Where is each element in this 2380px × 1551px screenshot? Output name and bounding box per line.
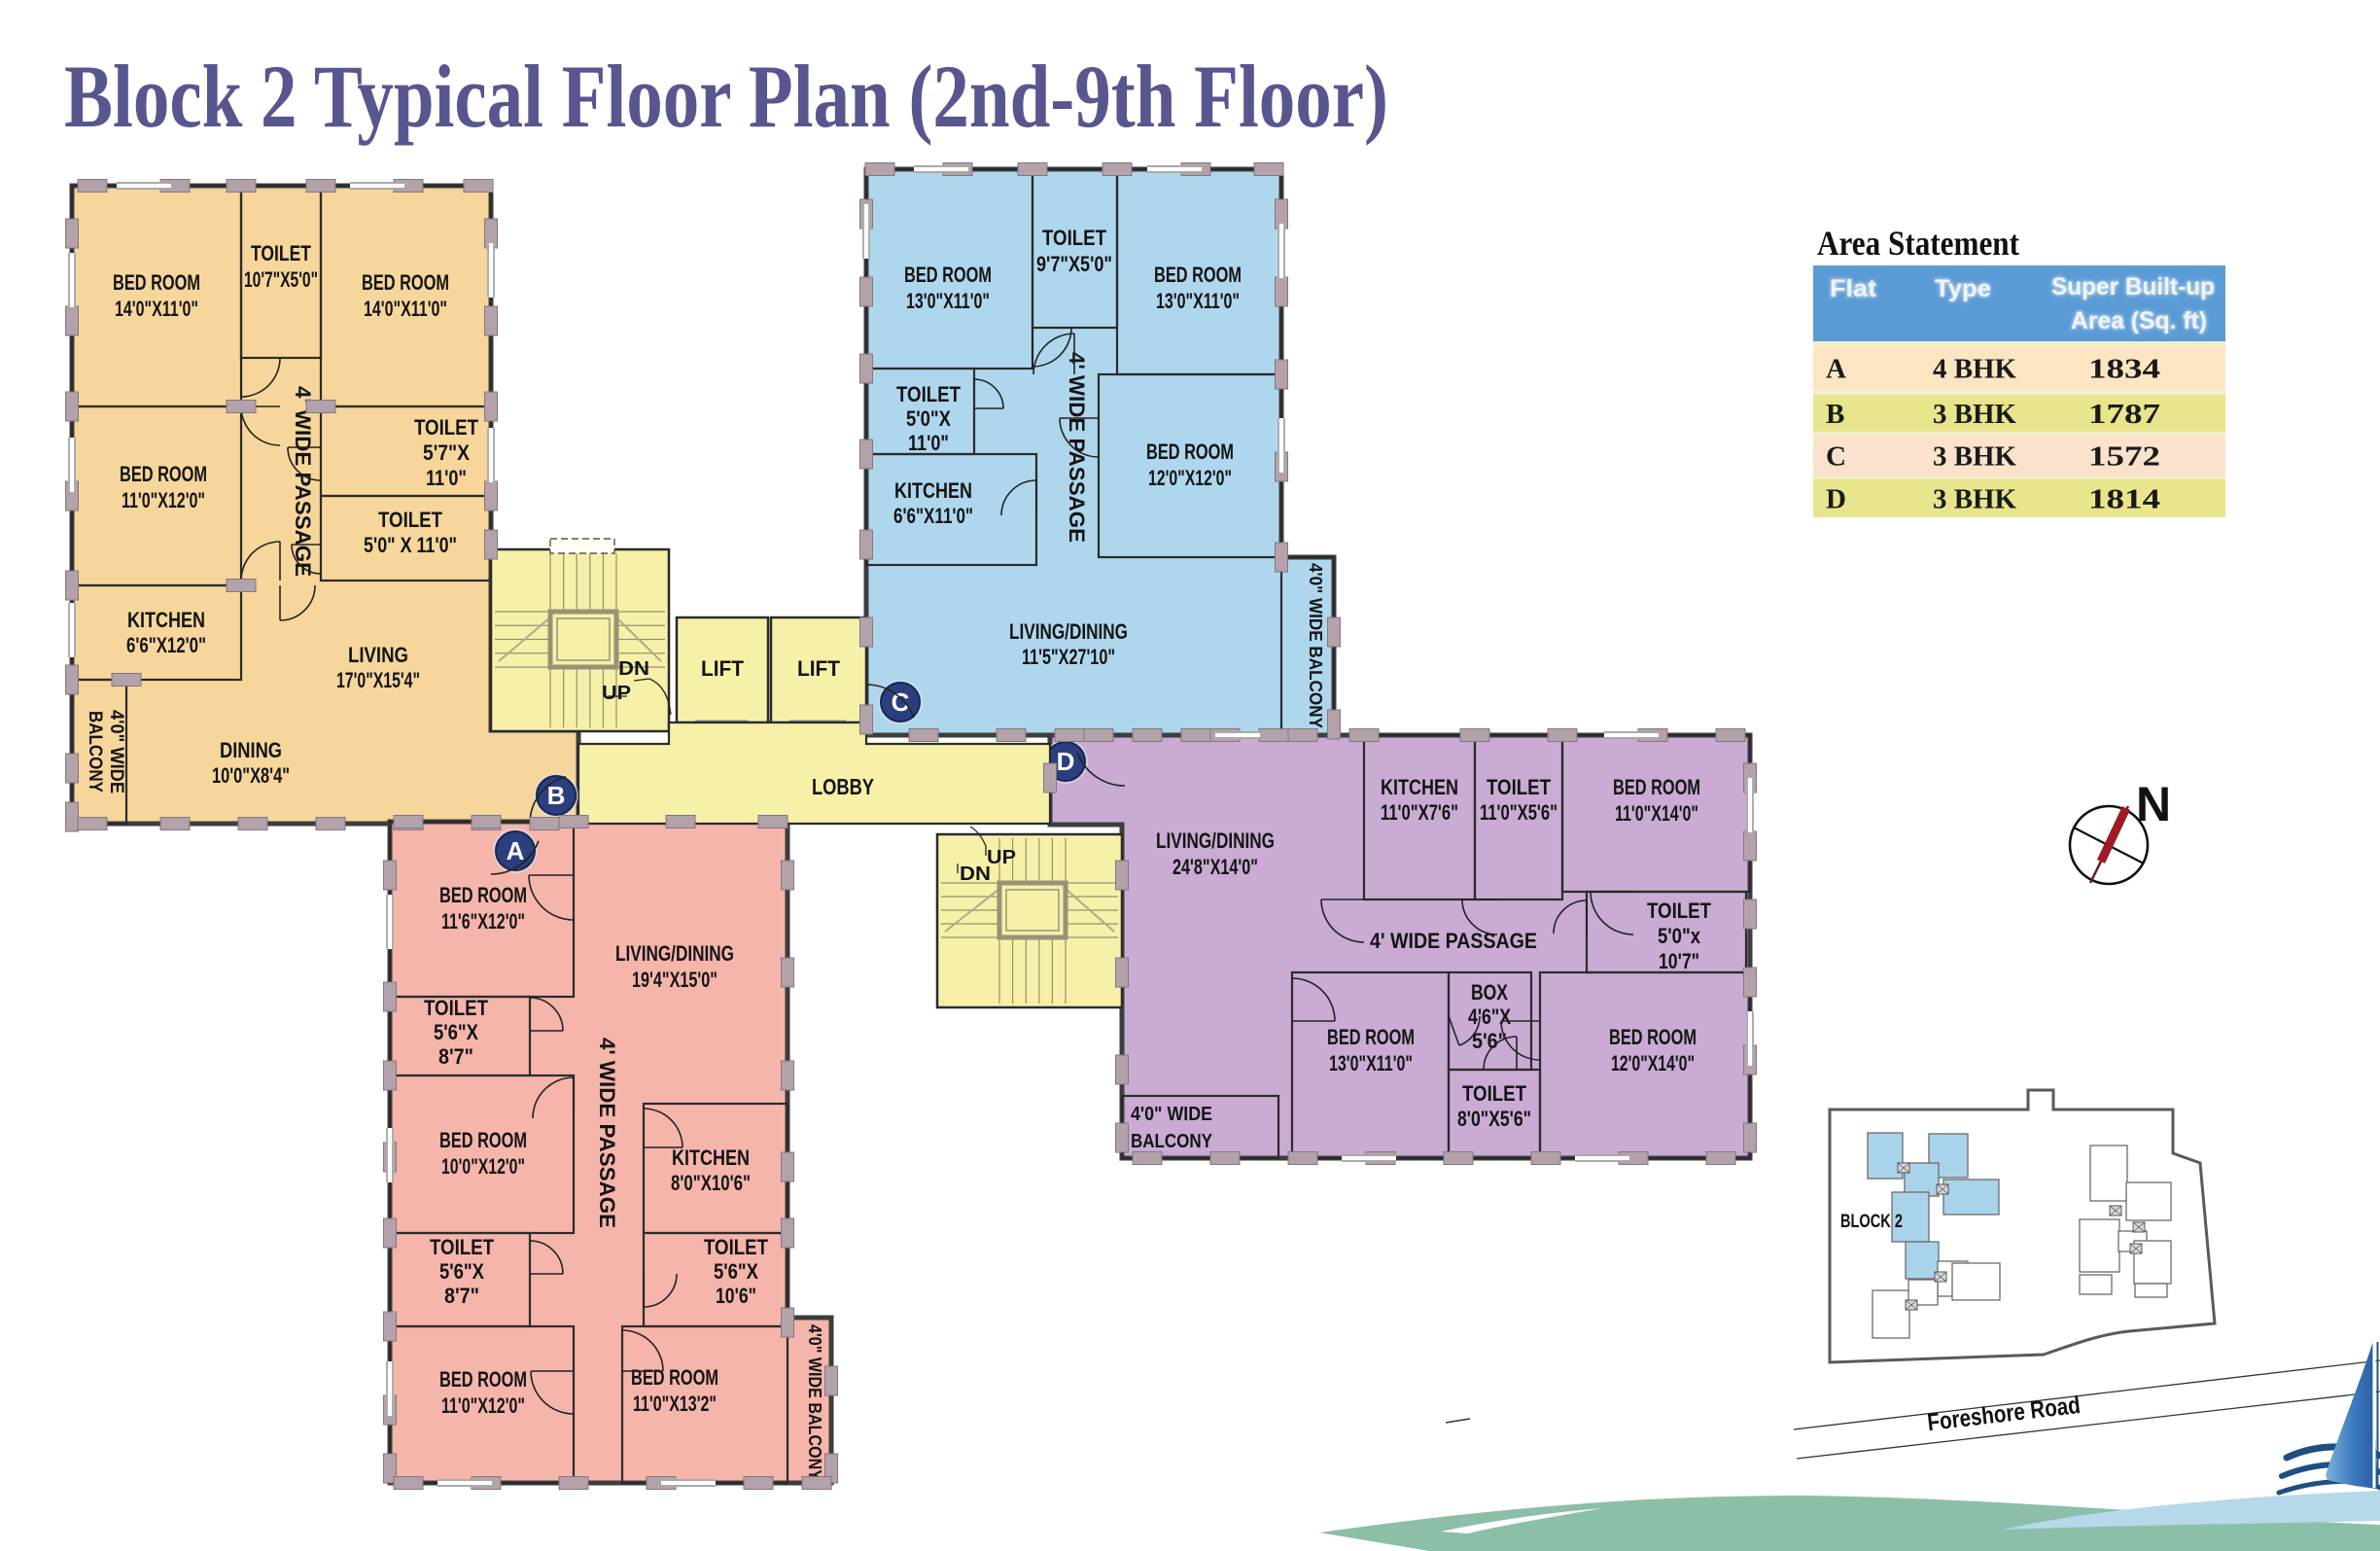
svg-text:BED ROOM: BED ROOM — [439, 1367, 527, 1392]
svg-text:BED ROOM: BED ROOM — [120, 462, 207, 486]
svg-text:3 BHK: 3 BHK — [1933, 399, 2016, 430]
svg-text:LIVING/DINING: LIVING/DINING — [1009, 619, 1128, 644]
svg-text:3 BHK: 3 BHK — [1933, 484, 2016, 515]
svg-text:4'0" WIDE BALCONY: 4'0" WIDE BALCONY — [805, 1324, 824, 1480]
svg-text:LIVING/DINING: LIVING/DINING — [1156, 828, 1275, 853]
svg-text:13'0"X11'0": 13'0"X11'0" — [1329, 1051, 1413, 1075]
svg-text:11'0": 11'0" — [426, 466, 467, 490]
svg-text:TOILET: TOILET — [896, 382, 961, 406]
svg-text:5'6": 5'6" — [1472, 1029, 1507, 1053]
svg-text:4'6"X: 4'6"X — [1468, 1005, 1511, 1029]
svg-text:Area (Sq. ft): Area (Sq. ft) — [2071, 307, 2207, 335]
svg-text:4 BHK: 4 BHK — [1933, 354, 2016, 385]
svg-text:UP: UP — [602, 683, 631, 704]
svg-text:6'6"X12'0": 6'6"X12'0" — [126, 633, 206, 657]
svg-text:TOILET: TOILET — [378, 508, 442, 532]
svg-text:KITCHEN: KITCHEN — [1381, 775, 1458, 799]
svg-text:4' WIDE PASSAGE: 4' WIDE PASSAGE — [595, 1038, 619, 1228]
svg-text:19'4"X15'0": 19'4"X15'0" — [632, 968, 717, 992]
svg-text:11'0": 11'0" — [908, 431, 949, 455]
svg-text:A: A — [507, 836, 525, 865]
svg-text:10'6": 10'6" — [716, 1284, 756, 1308]
svg-text:6'6"X11'0": 6'6"X11'0" — [893, 504, 973, 528]
svg-text:11'0"X12'0": 11'0"X12'0" — [441, 1393, 525, 1418]
svg-text:5'6"X: 5'6"X — [714, 1259, 758, 1284]
svg-text:4' WIDE PASSAGE: 4' WIDE PASSAGE — [1370, 929, 1537, 953]
svg-text:12'0"X14'0": 12'0"X14'0" — [1611, 1051, 1695, 1075]
svg-text:5'0"x: 5'0"x — [1658, 924, 1701, 948]
svg-text:8'0"X10'6": 8'0"X10'6" — [671, 1171, 751, 1195]
svg-text:BED ROOM: BED ROOM — [631, 1365, 718, 1390]
svg-text:LIFT: LIFT — [701, 656, 745, 681]
svg-text:13'0"X11'0": 13'0"X11'0" — [906, 289, 990, 313]
svg-text:4'0" WIDE: 4'0" WIDE — [1131, 1104, 1212, 1125]
svg-text:TOILET: TOILET — [704, 1235, 768, 1259]
svg-text:BED ROOM: BED ROOM — [362, 270, 449, 295]
svg-text:D: D — [1826, 484, 1846, 515]
svg-text:BED ROOM: BED ROOM — [1146, 440, 1234, 464]
svg-text:11'0"X14'0": 11'0"X14'0" — [1615, 801, 1698, 826]
svg-text:C: C — [1826, 441, 1846, 473]
svg-text:8'7": 8'7" — [444, 1284, 479, 1308]
svg-text:BOX: BOX — [1471, 980, 1508, 1005]
svg-text:17'0"X15'4": 17'0"X15'4" — [336, 668, 420, 692]
svg-text:8'0"X5'6": 8'0"X5'6" — [1457, 1107, 1531, 1131]
svg-text:10'0"X8'4": 10'0"X8'4" — [212, 763, 290, 788]
svg-text:LOBBY: LOBBY — [812, 774, 874, 799]
svg-text:Type: Type — [1935, 275, 1991, 302]
svg-text:Block 2 Typical Floor Plan (2n: Block 2 Typical Floor Plan (2nd-9th Floo… — [64, 47, 1388, 146]
svg-text:11'6"X12'0": 11'6"X12'0" — [441, 909, 525, 934]
svg-text:KITCHEN: KITCHEN — [672, 1146, 750, 1170]
svg-text:BALCONY: BALCONY — [85, 711, 105, 793]
svg-text:A: A — [1826, 354, 1846, 385]
svg-text:5'0" X 11'0": 5'0" X 11'0" — [364, 533, 457, 557]
svg-text:BED ROOM: BED ROOM — [1327, 1025, 1415, 1049]
svg-text:11'0"X13'2": 11'0"X13'2" — [633, 1392, 717, 1416]
svg-text:14'0"X11'0": 14'0"X11'0" — [364, 297, 447, 321]
svg-text:Super Built-up: Super Built-up — [2051, 273, 2215, 300]
svg-text:TOILET: TOILET — [251, 241, 311, 265]
svg-text:9'7"X5'0": 9'7"X5'0" — [1036, 252, 1112, 276]
svg-text:13'0"X11'0": 13'0"X11'0" — [1156, 289, 1240, 313]
svg-text:12'0"X12'0": 12'0"X12'0" — [1148, 466, 1232, 490]
svg-text:BALCONY: BALCONY — [1131, 1131, 1213, 1152]
svg-text:24'8"X14'0": 24'8"X14'0" — [1172, 855, 1258, 879]
svg-text:BLOCK 2: BLOCK 2 — [1840, 1212, 1903, 1232]
svg-text:N: N — [2136, 777, 2171, 831]
svg-text:TOILET: TOILET — [424, 996, 488, 1020]
svg-text:TOILET: TOILET — [1487, 775, 1551, 799]
svg-text:8'7": 8'7" — [438, 1044, 473, 1069]
svg-text:KITCHEN: KITCHEN — [894, 478, 972, 503]
svg-text:BED ROOM: BED ROOM — [1609, 1025, 1697, 1049]
svg-text:BED ROOM: BED ROOM — [113, 270, 200, 295]
svg-text:BED ROOM: BED ROOM — [439, 883, 527, 907]
svg-text:10'7"X5'0": 10'7"X5'0" — [244, 267, 318, 292]
svg-text:LIFT: LIFT — [797, 656, 841, 681]
svg-text:3 BHK: 3 BHK — [1933, 441, 2016, 473]
svg-text:5'6"X: 5'6"X — [434, 1020, 478, 1044]
svg-text:4' WIDE PASSAGE: 4' WIDE PASSAGE — [1065, 352, 1089, 543]
svg-text:B: B — [1826, 399, 1844, 430]
svg-text:TOILET: TOILET — [1462, 1081, 1526, 1106]
svg-text:BED ROOM: BED ROOM — [904, 263, 992, 287]
svg-text:Flat: Flat — [1830, 275, 1877, 302]
svg-text:TOILET: TOILET — [1647, 899, 1711, 923]
svg-text:5'0"X: 5'0"X — [906, 406, 951, 431]
svg-text:1814: 1814 — [2088, 484, 2160, 515]
svg-text:KITCHEN: KITCHEN — [127, 608, 205, 632]
svg-text:1834: 1834 — [2088, 354, 2160, 385]
svg-text:UP: UP — [987, 847, 1016, 868]
svg-text:DINING: DINING — [220, 738, 282, 762]
svg-text:4'0" WIDE BALCONY: 4'0" WIDE BALCONY — [1306, 563, 1325, 728]
svg-text:DN: DN — [618, 658, 649, 680]
svg-text:4'0" WIDE: 4'0" WIDE — [106, 710, 126, 793]
svg-text:11'5"X27'10": 11'5"X27'10" — [1022, 645, 1115, 669]
svg-text:Area Statement: Area Statement — [1817, 224, 2019, 263]
svg-text:TOILET: TOILET — [414, 415, 478, 440]
svg-text:5'7"X: 5'7"X — [423, 441, 470, 465]
svg-text:BED ROOM: BED ROOM — [439, 1128, 527, 1152]
svg-text:LIVING: LIVING — [348, 643, 408, 667]
svg-text:11'0"X7'6": 11'0"X7'6" — [1381, 800, 1458, 825]
svg-text:11'0"X12'0": 11'0"X12'0" — [122, 488, 205, 512]
svg-text:BED ROOM: BED ROOM — [1154, 263, 1242, 287]
svg-text:DN: DN — [960, 864, 991, 885]
svg-text:14'0"X11'0": 14'0"X11'0" — [115, 297, 198, 321]
svg-text:TOILET: TOILET — [1042, 226, 1106, 250]
svg-text:Foreshore Road: Foreshore Road — [1926, 1392, 2082, 1436]
svg-text:TOILET: TOILET — [430, 1235, 494, 1259]
svg-text:D: D — [1057, 747, 1075, 776]
svg-text:1787: 1787 — [2088, 399, 2160, 430]
svg-text:5'6"X: 5'6"X — [439, 1259, 484, 1284]
svg-text:BED ROOM: BED ROOM — [1613, 775, 1700, 799]
svg-text:10'7": 10'7" — [1659, 949, 1699, 973]
svg-text:LIVING/DINING: LIVING/DINING — [615, 941, 734, 966]
svg-text:10'0"X12'0": 10'0"X12'0" — [441, 1154, 525, 1179]
svg-text:11'0"X5'6": 11'0"X5'6" — [1480, 800, 1557, 825]
svg-text:1572: 1572 — [2088, 441, 2160, 473]
svg-text:4' WIDE PASSAGE: 4' WIDE PASSAGE — [291, 386, 315, 577]
